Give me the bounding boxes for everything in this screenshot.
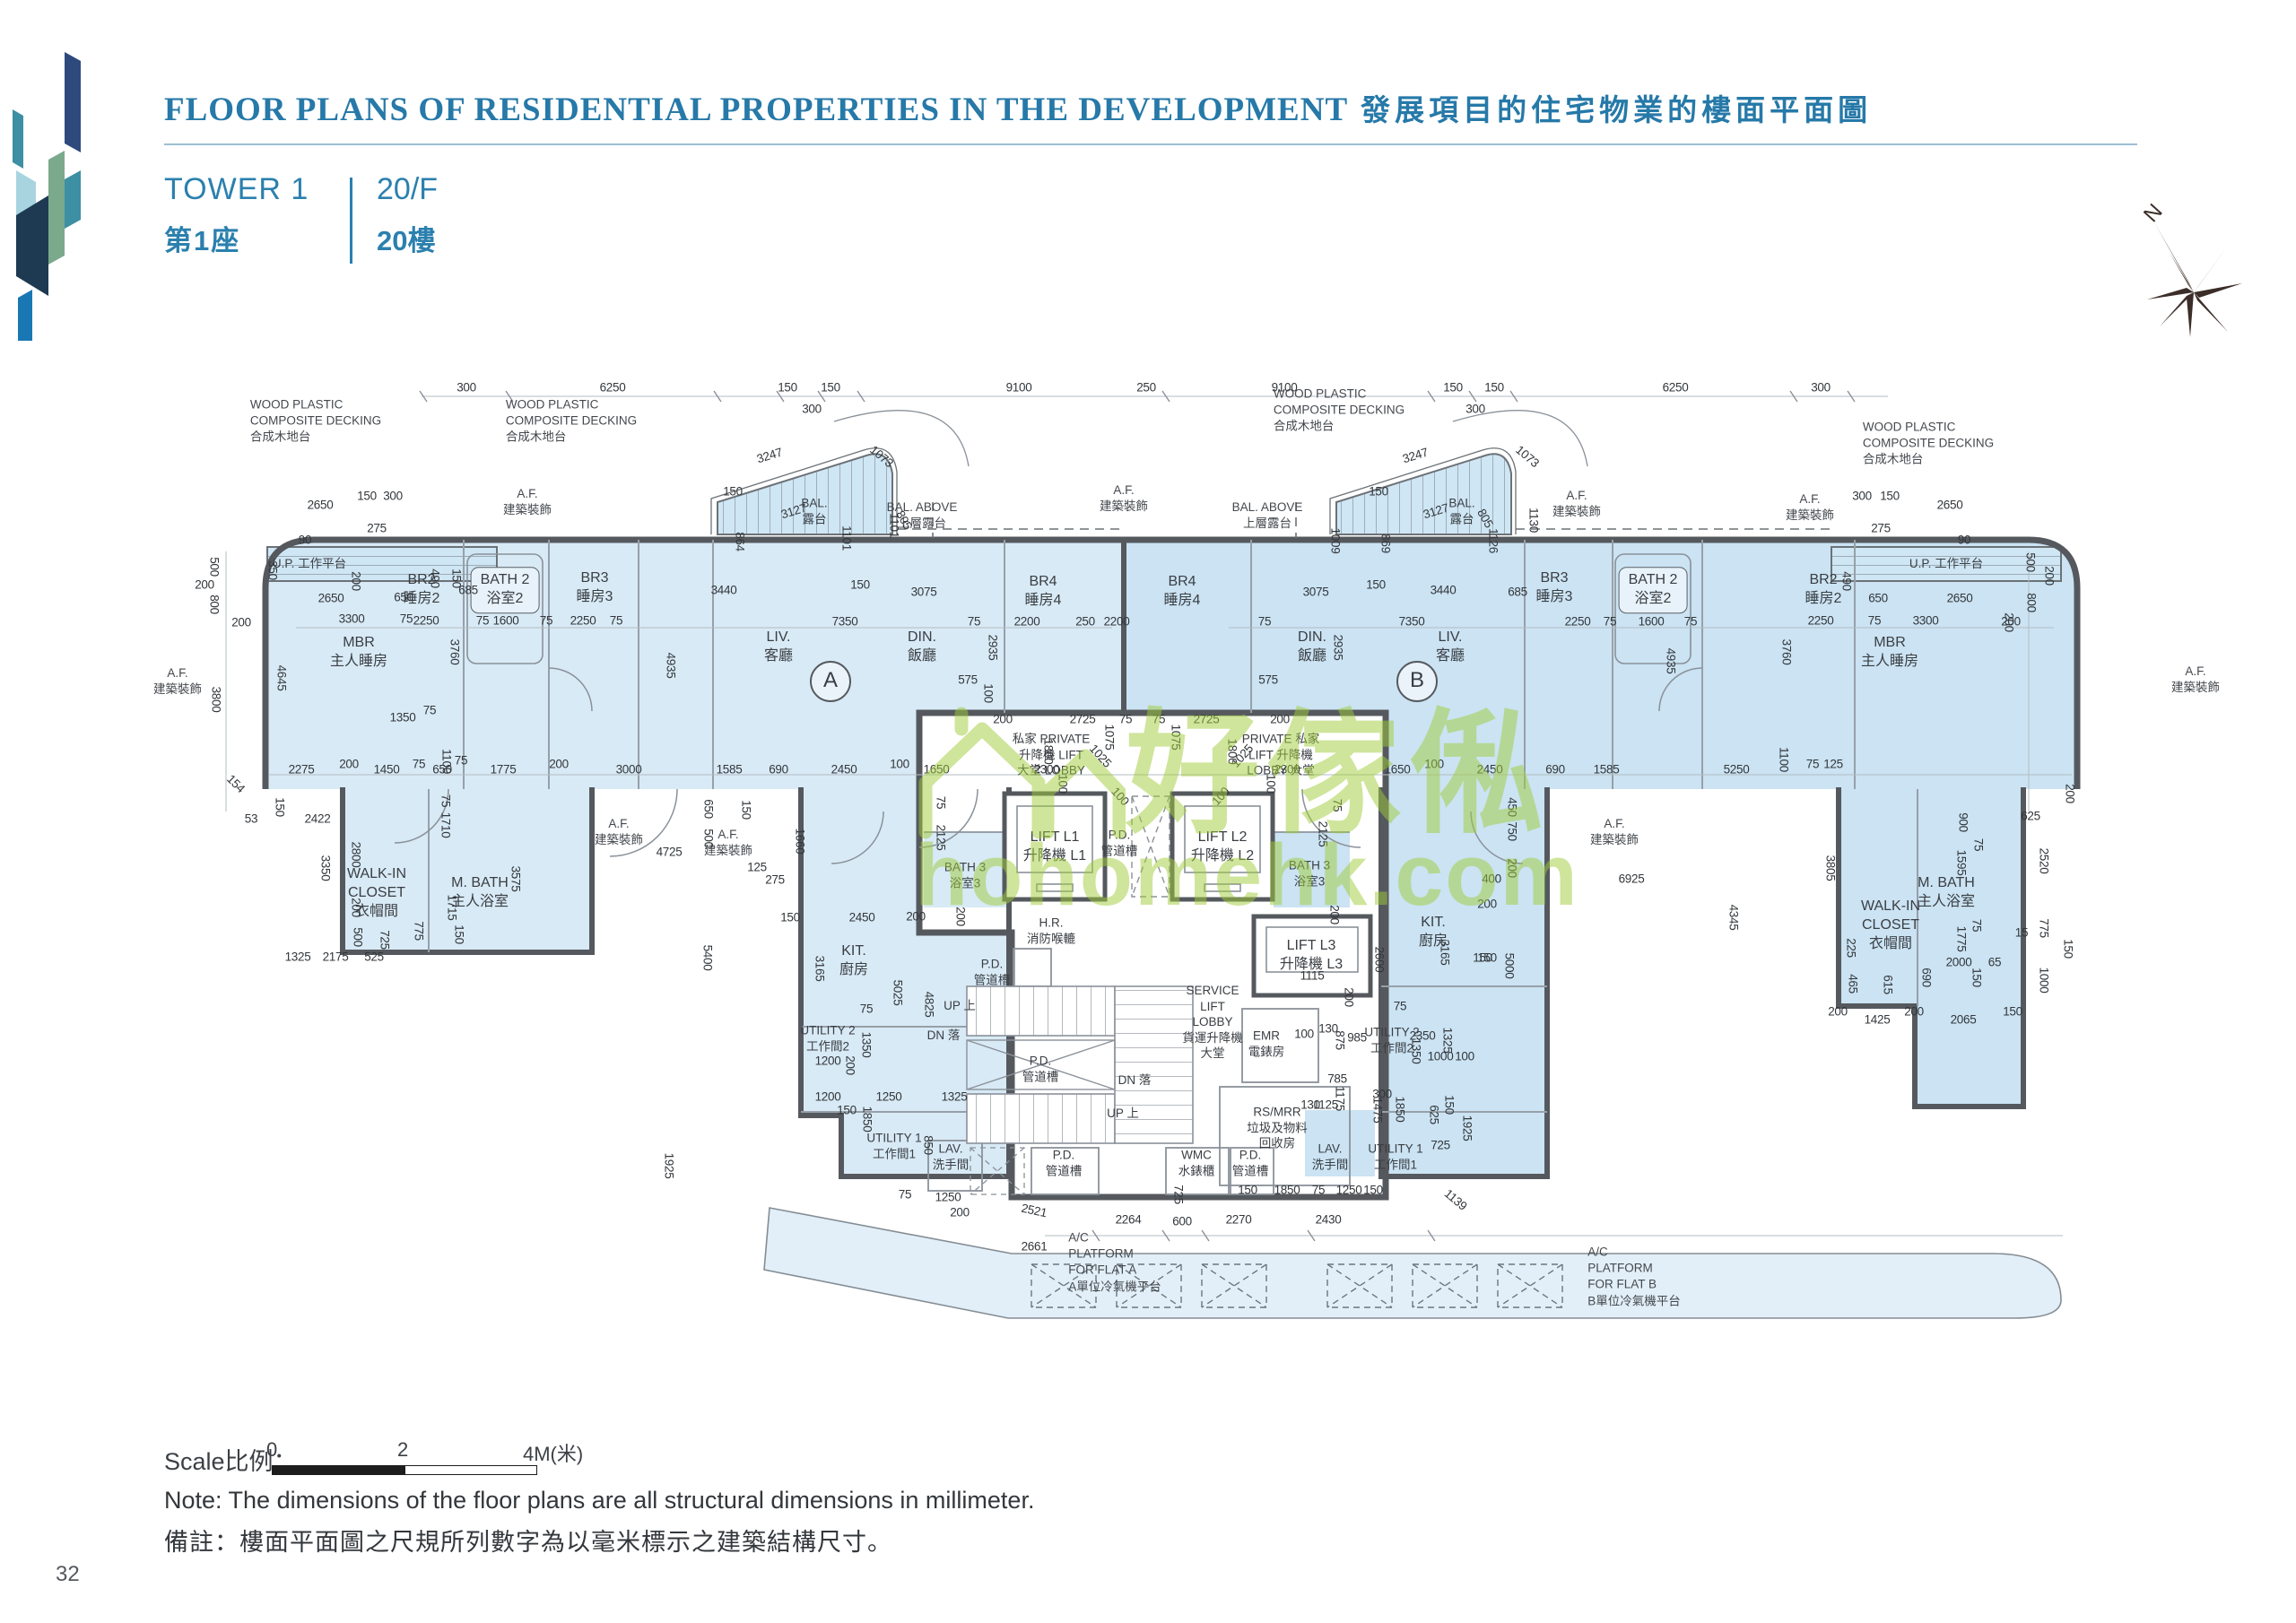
note-en: Note: The dimensions of the floor plans … bbox=[164, 1487, 1034, 1515]
scale-tick-2: 2 bbox=[397, 1438, 408, 1462]
scale-tick-0: 0 bbox=[266, 1438, 277, 1462]
scale-bar bbox=[272, 1465, 537, 1475]
compass-n-label: N bbox=[2142, 199, 2168, 227]
scale-tick-4m: 4M(米) bbox=[523, 1438, 583, 1467]
north-compass: N bbox=[2142, 195, 2249, 343]
scale-bar-empty bbox=[404, 1465, 537, 1475]
scale-bar-filled bbox=[272, 1465, 404, 1475]
page-number: 32 bbox=[56, 1562, 80, 1587]
note-zh: 備註：樓面平面圖之尺規所列數字為以毫米標示之建築結構尺寸。 bbox=[164, 1523, 892, 1558]
floor-plan-drawing bbox=[0, 0, 2296, 1623]
floor-plan: U.P. 工作平台U.P. 工作平台MBR主人睡房BR2睡房2BATH 2浴室2… bbox=[0, 0, 2296, 1623]
